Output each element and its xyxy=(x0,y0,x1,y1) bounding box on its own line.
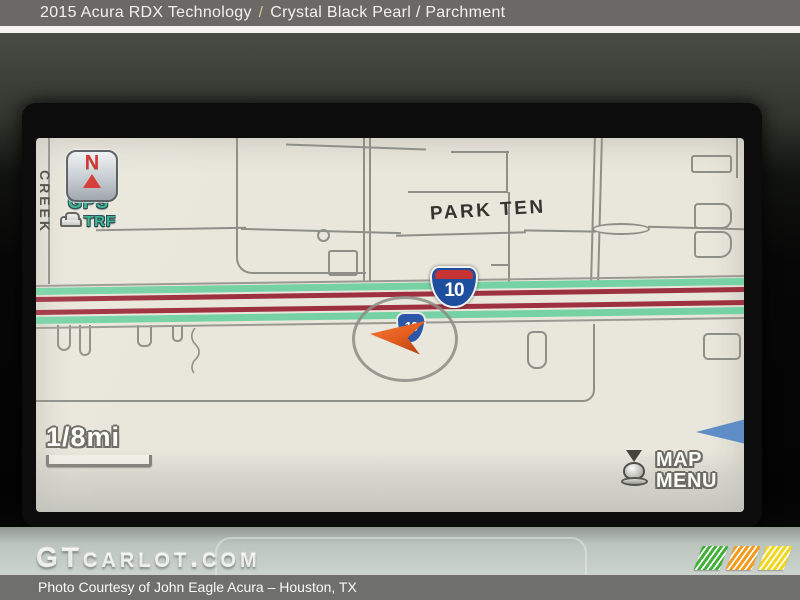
map-road xyxy=(363,138,371,281)
map-road xyxy=(451,151,509,153)
nav-display[interactable]: PARK TEN CREEK 10 10 N xyxy=(36,138,744,512)
creek-squiggle xyxy=(184,328,204,374)
title-bar: 2015 Acura RDX Technology/Crystal Black … xyxy=(0,0,800,26)
map-road xyxy=(592,223,650,235)
compass-arrow-icon xyxy=(83,174,101,188)
title-separator: / xyxy=(259,4,263,21)
gtcarlot-logo xyxy=(692,546,788,575)
map-road xyxy=(79,325,91,356)
logo-stripe-block xyxy=(694,546,729,570)
compass-north-letter: N xyxy=(68,152,116,174)
map-road xyxy=(396,231,526,236)
map-road xyxy=(491,264,509,266)
map-road xyxy=(524,229,596,232)
traffic-indicator: TRF xyxy=(60,213,130,231)
map-road xyxy=(328,250,358,276)
map-menu-button[interactable]: MAP MENU xyxy=(620,450,717,492)
map-scale-label: 1/8mi xyxy=(46,422,152,453)
photo-credit-bar: Photo Courtesy of John Eagle Acura – Hou… xyxy=(0,575,800,600)
map-road xyxy=(527,331,547,369)
map-menu-line2: MENU xyxy=(656,471,717,492)
traffic-status-label: TRF xyxy=(84,213,116,230)
logo-stripe-block xyxy=(726,546,761,570)
compass-north-icon: N xyxy=(66,150,118,202)
map-scale: 1/8mi xyxy=(46,422,152,467)
map-road xyxy=(736,138,738,178)
map-label-creek: CREEK xyxy=(37,170,53,234)
dashboard-photo: PARK TEN CREEK 10 10 N xyxy=(0,33,800,575)
shield-route-number: 10 xyxy=(432,281,476,300)
photo-credit: Photo Courtesy of John Eagle Acura – Hou… xyxy=(38,579,357,595)
page-background-strip xyxy=(0,26,800,33)
color-title: Crystal Black Pearl / Parchment xyxy=(270,4,505,21)
dash-trim-outline xyxy=(215,537,587,575)
logo-stripe-block xyxy=(758,546,793,570)
gps-widget: N GPS TRF xyxy=(60,150,130,231)
map-road xyxy=(36,324,595,402)
triangle-down-icon xyxy=(626,450,642,462)
map-road xyxy=(694,203,732,229)
map-road xyxy=(694,231,732,258)
map-menu-label: MAP MENU xyxy=(656,450,717,492)
map-blue-wedge xyxy=(696,419,744,444)
map-road xyxy=(172,326,183,342)
traffic-car-icon xyxy=(60,216,82,227)
shield-crown xyxy=(435,270,473,279)
map-road xyxy=(408,151,508,193)
map-label-park-ten: PARK TEN xyxy=(429,196,546,225)
map-menu-line1: MAP xyxy=(656,450,717,471)
watermark-gtcarlot: GTcarlot.com xyxy=(36,542,261,574)
map-scale-bar xyxy=(46,455,152,467)
map-road xyxy=(691,155,732,173)
screenshot-root: 2015 Acura RDX Technology/Crystal Black … xyxy=(0,0,800,600)
map-road xyxy=(590,138,603,282)
vehicle-title: 2015 Acura RDX Technology xyxy=(40,4,252,21)
map-canvas[interactable]: PARK TEN CREEK 10 10 N xyxy=(36,138,744,512)
joystick-knob-icon xyxy=(620,450,650,492)
map-road xyxy=(703,333,741,360)
knob-base xyxy=(621,477,648,486)
